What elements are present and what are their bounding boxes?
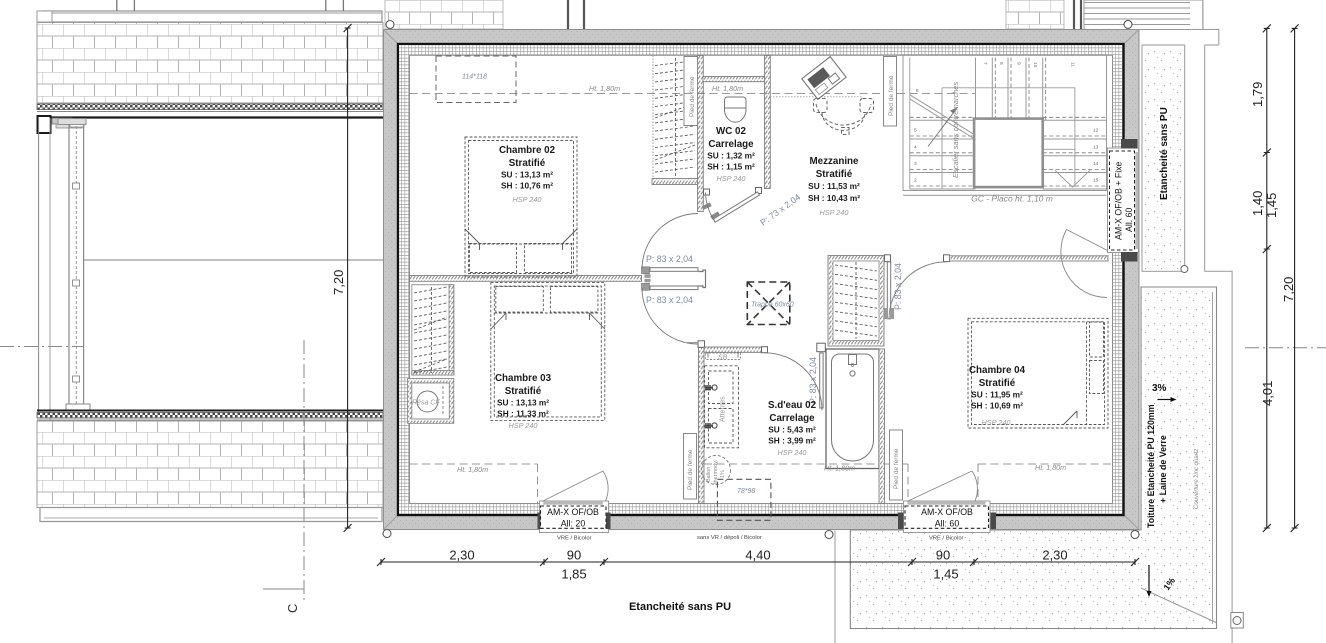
svg-text:Chambre 04: Chambre 04 (969, 365, 1026, 376)
svg-text:2: 2 (914, 178, 917, 184)
svg-text:1,40: 1,40 (1250, 191, 1265, 216)
svg-text:P: 83 x 2,04: P: 83 x 2,04 (646, 254, 693, 264)
svg-text:Etancheité sans PU: Etancheité sans PU (629, 601, 731, 613)
svg-text:HSP 240: HSP 240 (820, 208, 849, 217)
svg-text:SH : 3,99 m²: SH : 3,99 m² (768, 436, 816, 446)
svg-text:SU : 13,13 m²: SU : 13,13 m² (501, 170, 553, 180)
svg-text:3: 3 (914, 161, 917, 167)
svg-text:4: 4 (914, 144, 917, 150)
svg-text:Stratifié: Stratifié (979, 378, 1016, 389)
svg-text:GC - Placo ht. 1,10 m: GC - Placo ht. 1,10 m (971, 194, 1053, 204)
svg-text:114*118: 114*118 (462, 74, 487, 81)
svg-text:90: 90 (936, 548, 950, 563)
svg-text:P: 83 x 2,04: P: 83 x 2,04 (893, 263, 903, 310)
svg-text:thermody.: thermody. (713, 459, 719, 484)
svg-text:7,20: 7,20 (331, 270, 346, 295)
svg-text:Toiture Etancheité PU 120mm: Toiture Etancheité PU 120mm (1146, 404, 1156, 528)
svg-text:Ballon: Ballon (706, 467, 712, 482)
svg-text:90: 90 (567, 548, 581, 563)
svg-text:4,01: 4,01 (1260, 381, 1275, 406)
svg-text:Pied de ferme: Pied de ferme (689, 76, 696, 117)
svg-text:Carrelage: Carrelage (708, 139, 754, 150)
svg-text:8: 8 (998, 62, 1004, 65)
svg-text:2,30: 2,30 (449, 548, 474, 563)
svg-text:WC 02: WC 02 (716, 126, 746, 137)
svg-text:SU : 11,95 m²: SU : 11,95 m² (971, 390, 1023, 400)
svg-text:9: 9 (1016, 62, 1022, 65)
svg-text:AM-X OF/OB: AM-X OF/OB (547, 507, 599, 517)
svg-text:7,20: 7,20 (1281, 277, 1296, 302)
svg-text:SH : 10,69 m²: SH : 10,69 m² (971, 401, 1023, 411)
svg-text:S.d'eau 02: S.d'eau 02 (768, 400, 817, 411)
svg-text:AM-X OF/OB: AM-X OF/OB (921, 507, 973, 517)
svg-text:4,40: 4,40 (745, 548, 770, 563)
svg-text:Ht. 1,80m: Ht. 1,80m (1035, 463, 1066, 472)
svg-text:VRE / Bicolor: VRE / Bicolor (557, 536, 592, 542)
svg-text:SH : 10,43 m²: SH : 10,43 m² (808, 193, 860, 203)
svg-text:VRE / Bicolor: VRE / Bicolor (929, 536, 964, 542)
svg-text:P: 83 x 2,04: P: 83 x 2,04 (646, 295, 693, 305)
svg-text:SU : 13,13 m²: SU : 13,13 m² (497, 398, 549, 408)
svg-text:7: 7 (982, 62, 988, 65)
svg-text:Couverture zinc quartz: Couverture zinc quartz (1194, 449, 1200, 509)
svg-text:All: 20: All: 20 (561, 519, 586, 529)
svg-text:SU : 5,43 m²: SU : 5,43 m² (768, 425, 816, 435)
svg-text:P: 83 x 2,04: P: 83 x 2,04 (808, 357, 818, 404)
svg-text:Ht. 1,80m: Ht. 1,80m (589, 84, 620, 93)
svg-text:All: 60: All: 60 (935, 519, 960, 529)
svg-text:+ Laine de Verre: + Laine de Verre (1158, 435, 1168, 503)
svg-text:1,79: 1,79 (1250, 82, 1265, 107)
svg-text:sans VR / dépoli / Bicolor: sans VR / dépoli / Bicolor (697, 535, 762, 541)
svg-text:Ht. 1,80m: Ht. 1,80m (824, 464, 855, 473)
svg-text:Pied de ferme: Pied de ferme (687, 449, 694, 490)
svg-text:5: 5 (914, 128, 917, 134)
svg-text:C: C (285, 604, 300, 613)
svg-text:Stratifié: Stratifié (816, 169, 853, 180)
svg-text:13: 13 (1093, 144, 1099, 150)
svg-text:HSP 240: HSP 240 (982, 418, 1011, 427)
svg-text:Escalier sans contremarches: Escalier sans contremarches (951, 81, 960, 178)
svg-text:78*98: 78*98 (737, 488, 755, 495)
svg-text:2,30: 2,30 (1042, 548, 1067, 563)
svg-text:15: 15 (1093, 178, 1099, 184)
svg-text:SH : 1,15 m²: SH : 1,15 m² (707, 162, 755, 172)
svg-text:Résa CF: Résa CF (412, 400, 440, 407)
svg-text:Ht. 1,80m: Ht. 1,80m (712, 84, 743, 93)
svg-text:11: 11 (1070, 62, 1076, 67)
svg-text:HSP 240: HSP 240 (513, 195, 542, 204)
svg-text:SU : 11,53 m²: SU : 11,53 m² (808, 181, 860, 191)
svg-text:AM-X OF/OB + Fixe: AM-X OF/OB + Fixe (1114, 161, 1124, 240)
svg-text:Chambre 02: Chambre 02 (499, 145, 556, 156)
svg-text:12: 12 (1093, 128, 1099, 134)
svg-text:Trappe 60x60: Trappe 60x60 (751, 302, 794, 309)
svg-text:Chambre 03: Chambre 03 (495, 373, 552, 384)
svg-text:6: 6 (916, 88, 919, 94)
svg-text:3%: 3% (1152, 383, 1167, 394)
svg-text:Ht. 1,80m: Ht. 1,80m (457, 465, 488, 474)
svg-text:All. 60: All. 60 (1124, 207, 1134, 232)
svg-text:Stratifié: Stratifié (509, 158, 546, 169)
svg-text:1%: 1% (720, 470, 726, 478)
svg-text:Attentes: Attentes (720, 396, 727, 422)
svg-text:HSP 240: HSP 240 (778, 448, 807, 457)
svg-text:HSP 240: HSP 240 (717, 174, 746, 183)
svg-text:Pied de ferme: Pied de ferme (888, 75, 895, 116)
svg-text:SH : 10,76 m²: SH : 10,76 m² (501, 181, 553, 191)
svg-text:Pied de ferme: Pied de ferme (893, 448, 900, 489)
svg-text:SU : 1,32 m²: SU : 1,32 m² (707, 151, 755, 161)
svg-text:10: 10 (1032, 62, 1038, 68)
svg-text:HSP 240: HSP 240 (509, 421, 538, 430)
svg-text:Mezzanine: Mezzanine (810, 156, 860, 167)
svg-text:Carrelage: Carrelage (769, 413, 815, 424)
svg-text:Etancheité sans PU: Etancheité sans PU (1159, 107, 1170, 200)
svg-text:SH : 11,33 m²: SH : 11,33 m² (497, 409, 549, 419)
svg-text:1,45: 1,45 (933, 567, 958, 582)
svg-text:1,85: 1,85 (561, 567, 586, 582)
svg-text:14: 14 (1093, 161, 1099, 167)
svg-text:1,45: 1,45 (1264, 193, 1279, 218)
svg-text:SB: SB (718, 355, 728, 362)
svg-text:Stratifié: Stratifié (505, 386, 542, 397)
